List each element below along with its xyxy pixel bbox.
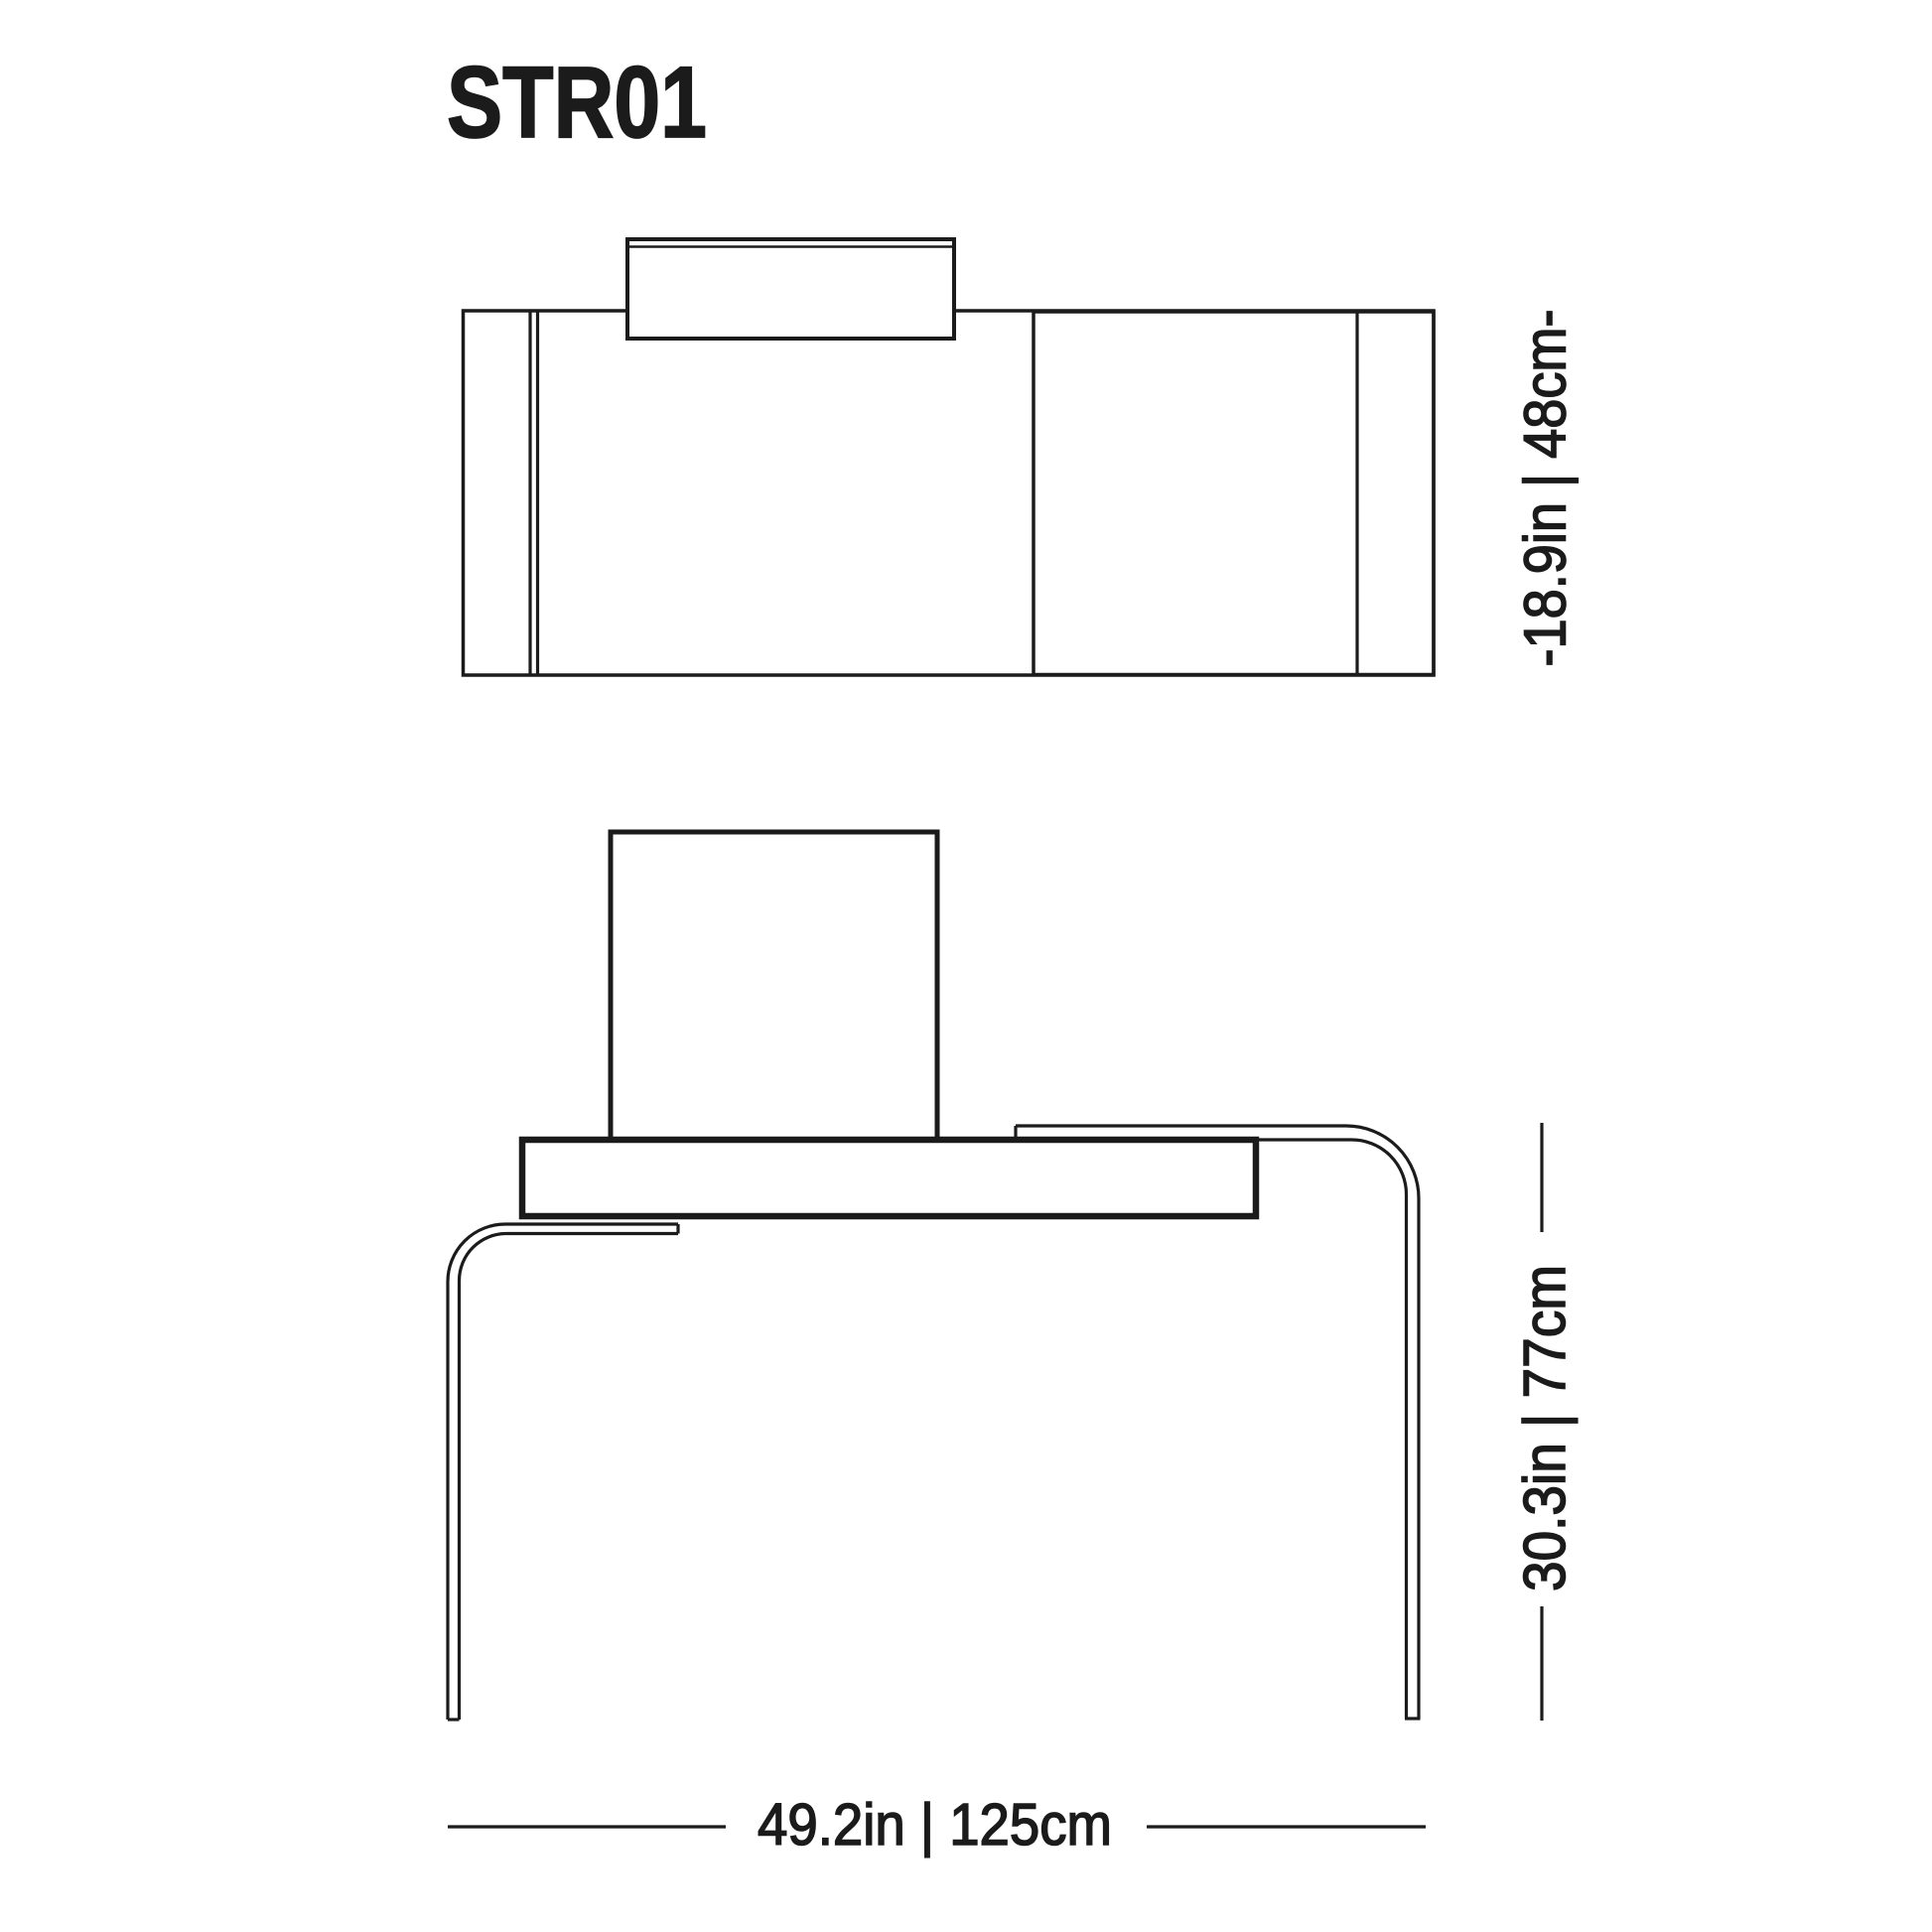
svg-text:49.2in | 125cm: 49.2in | 125cm [758, 1792, 1112, 1858]
svg-text:-18.9in | 48cm-: -18.9in | 48cm- [1513, 310, 1579, 667]
svg-text:STR01: STR01 [447, 46, 707, 159]
svg-text:30.3in | 77cm: 30.3in | 77cm [1512, 1265, 1578, 1591]
